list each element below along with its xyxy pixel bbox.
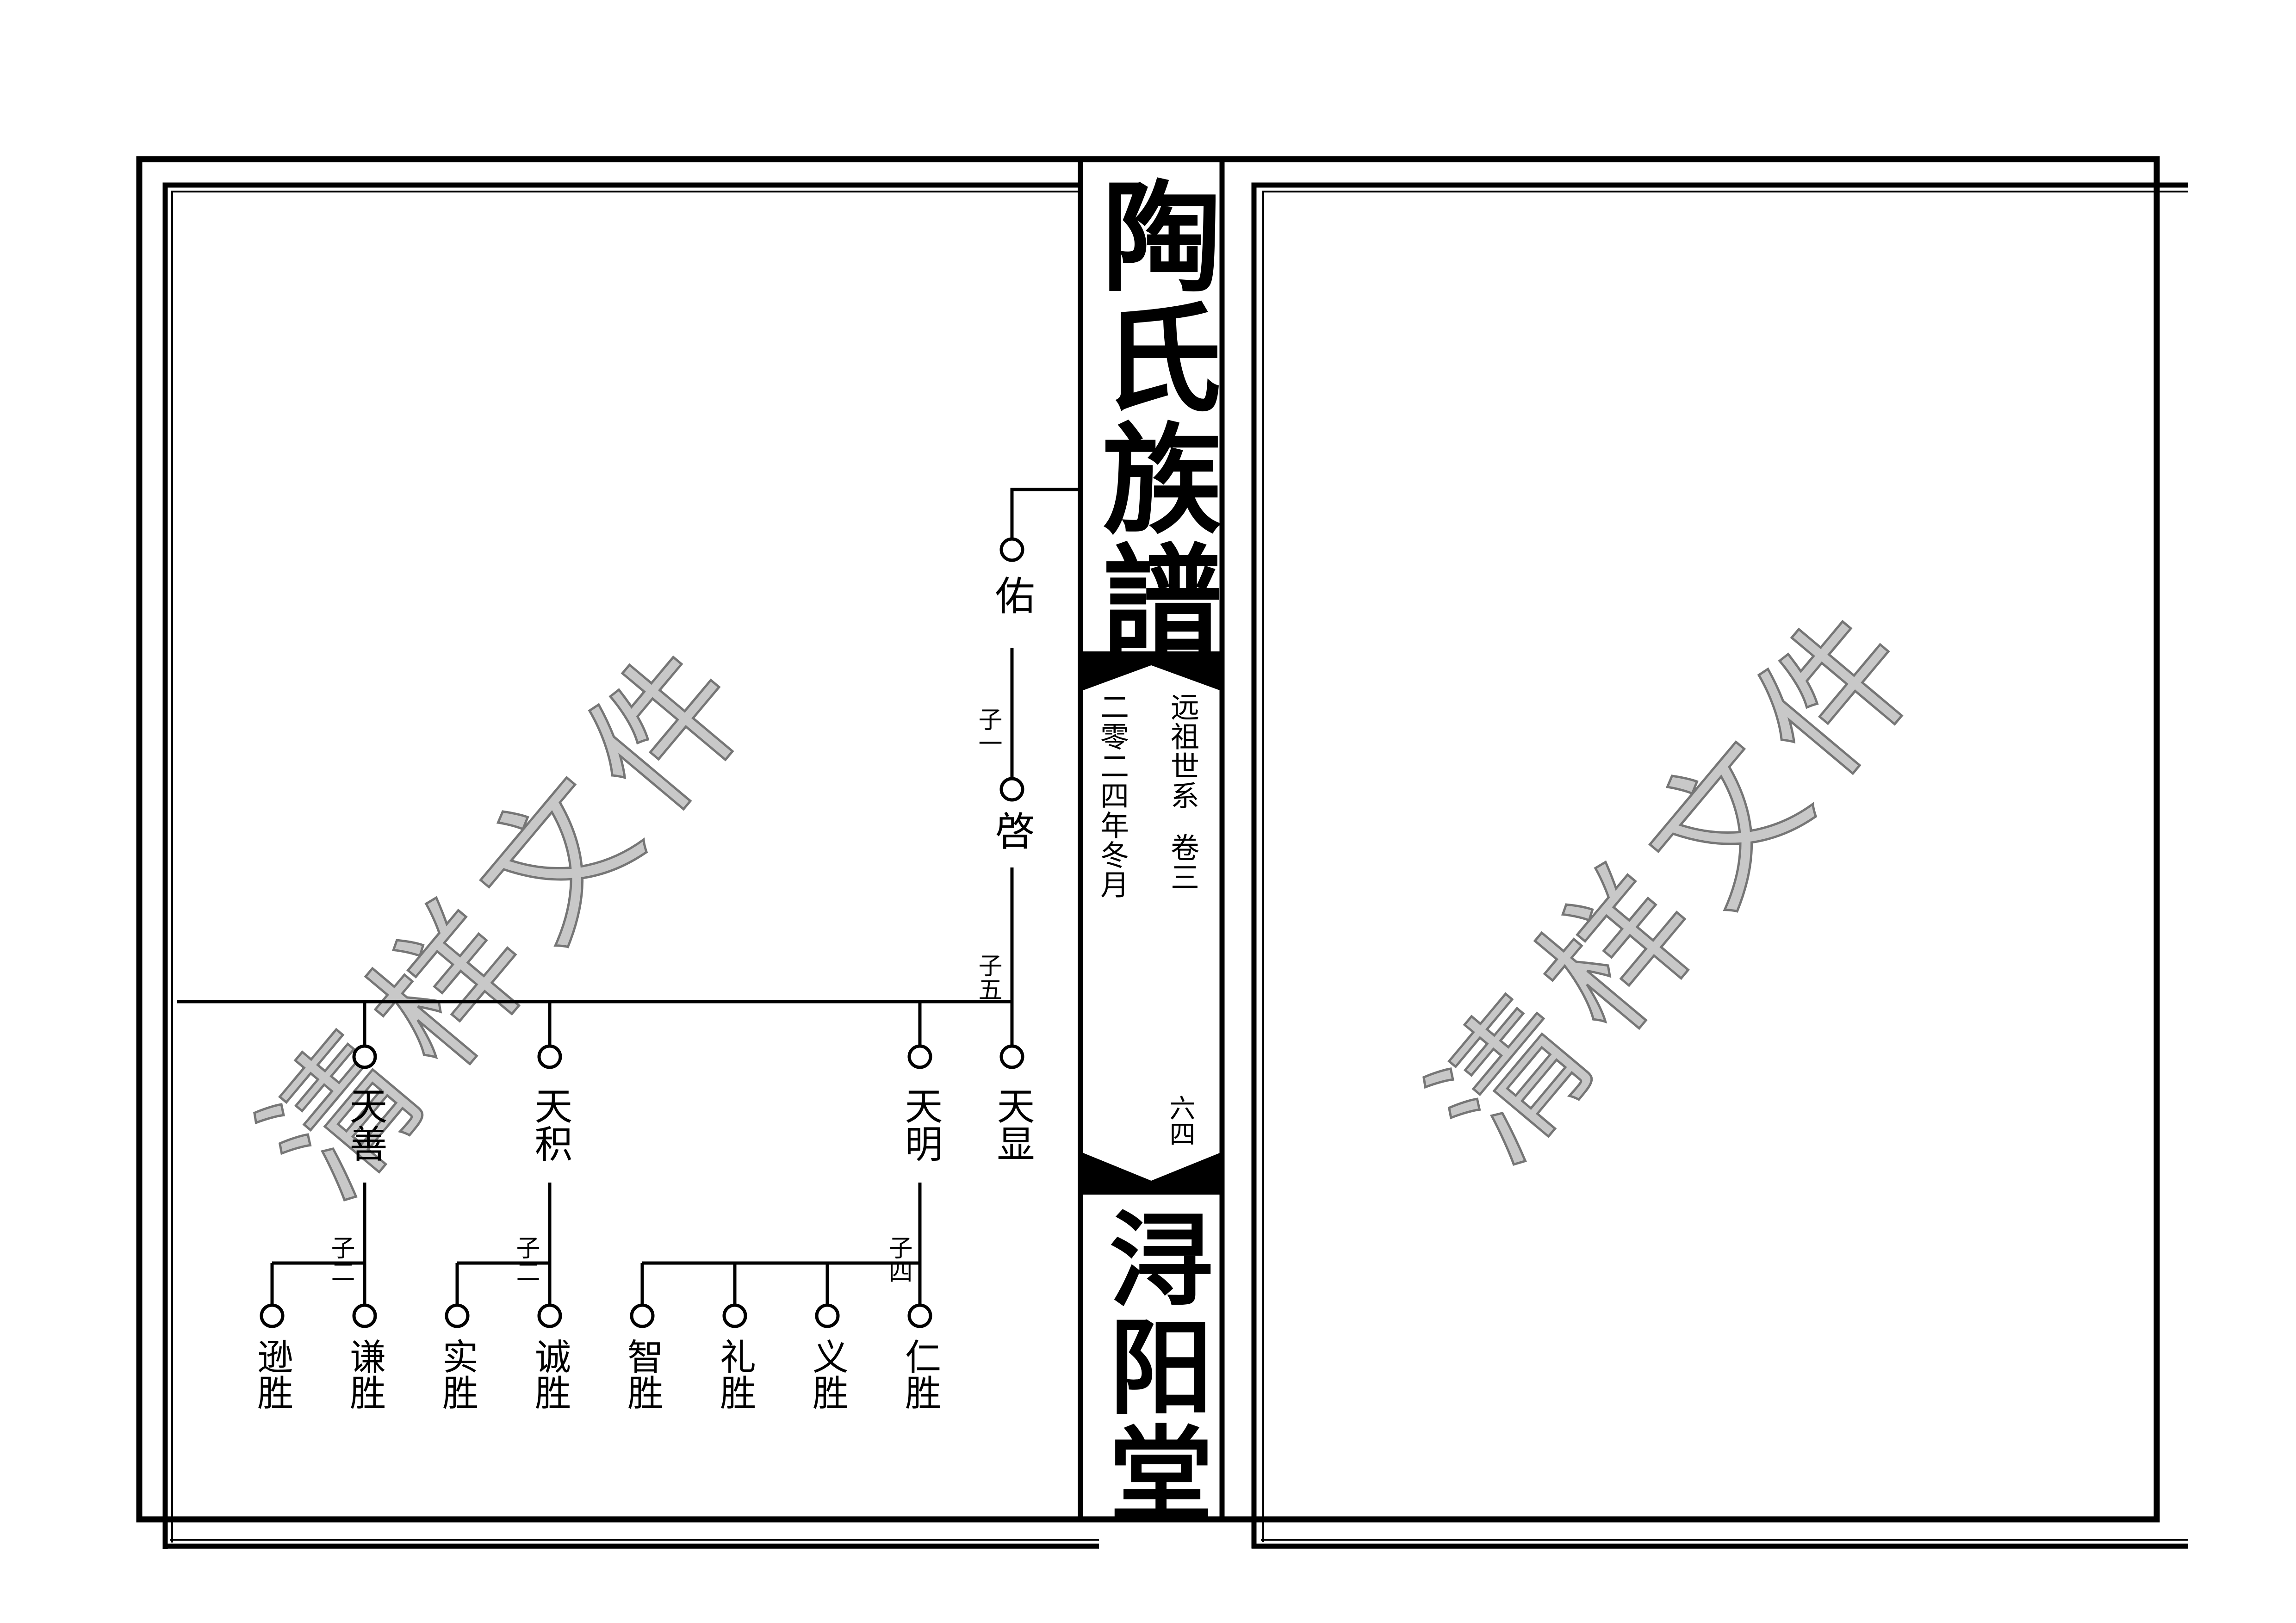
node-name-gen4: 礼胜 — [715, 1338, 754, 1410]
spine-volume: 卷三 — [1167, 833, 1197, 892]
child-count-label-gen2: 子五 — [974, 953, 1000, 1001]
right-page-frame — [1252, 185, 2188, 1549]
node-name-gen3: 天积 — [529, 1086, 570, 1162]
node-circle — [447, 1305, 468, 1326]
node-circle — [354, 1046, 375, 1067]
node-name-gen1: 佑 — [992, 575, 1032, 615]
node-name-gen2: 啓 — [992, 811, 1032, 850]
child-count-label-group1: 子二 — [327, 1235, 353, 1283]
node-name-gen3: 天善 — [344, 1086, 385, 1162]
spine-hall-name: 浔阳堂 — [1081, 1206, 1222, 1528]
node-circle — [1001, 779, 1023, 800]
spine-band-bottom — [1083, 1153, 1220, 1195]
node-name-gen4: 谦胜 — [345, 1338, 384, 1410]
genealogy-scan-sheet: 清样文件 清样文件 — [0, 0, 2296, 1623]
spine-page-number: 六四 — [1167, 1095, 1194, 1146]
tree-connectors — [177, 489, 1080, 1305]
node-name-gen4: 诚胜 — [530, 1338, 569, 1410]
node-circle — [261, 1305, 283, 1326]
node-name-gen4: 义胜 — [808, 1338, 847, 1410]
node-circle — [909, 1046, 931, 1067]
node-circle — [817, 1305, 838, 1326]
node-circle — [909, 1305, 931, 1326]
node-circle — [539, 1305, 560, 1326]
node-circle — [632, 1305, 653, 1326]
node-circle — [1001, 539, 1023, 560]
node-circle — [354, 1305, 375, 1326]
spine-title: 陶氏族譜 — [1081, 175, 1222, 660]
node-circle — [539, 1046, 560, 1067]
child-count-label-group3: 子四 — [885, 1235, 911, 1283]
child-count-label-group2: 子二 — [512, 1235, 538, 1283]
child-count-label-gen1: 子一 — [974, 707, 1000, 755]
spine-date: 二零二四年冬月 — [1097, 692, 1127, 899]
tree-node-circles — [261, 539, 1023, 1326]
node-name-gen4: 智胜 — [623, 1338, 662, 1410]
node-circle — [724, 1305, 745, 1326]
node-name-gen3: 天明 — [900, 1086, 940, 1162]
node-circle — [1001, 1046, 1023, 1067]
node-name-gen4: 实胜 — [438, 1338, 477, 1410]
node-name-gen4: 逊胜 — [253, 1338, 292, 1410]
spine-section: 远祖世系 — [1167, 692, 1197, 811]
node-name-gen4: 仁胜 — [900, 1338, 939, 1410]
node-name-gen3: 天显 — [992, 1086, 1032, 1162]
